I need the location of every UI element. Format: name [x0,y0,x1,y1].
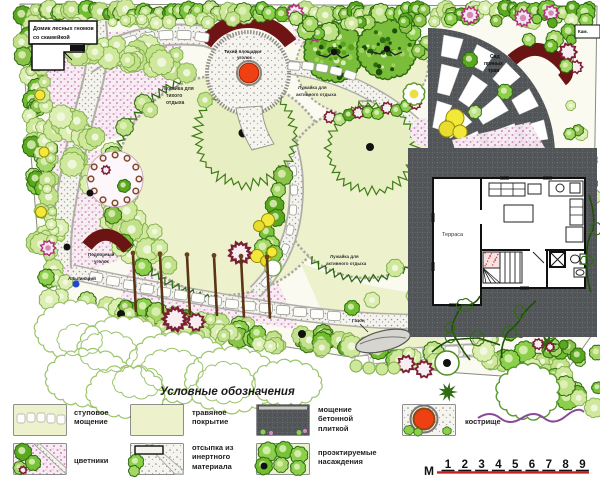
svg-text:кострище: кострище [465,417,501,426]
svg-text:8: 8 [562,459,569,471]
svg-text:Тихий площадки: Тихий площадки [224,48,261,54]
svg-text:М: М [424,464,434,478]
svg-text:Альпинарий: Альпинарий [68,275,96,281]
svg-text:1: 1 [445,459,452,471]
svg-text:Сад: Сад [490,54,500,60]
svg-text:активного отдыха: активного отдыха [326,261,367,266]
svg-text:камня: камня [360,104,370,108]
svg-text:уголок: уголок [237,55,253,60]
svg-text:бетонной: бетонной [318,414,354,423]
svg-text:цветники: цветники [74,456,109,465]
svg-text:мощение: мощение [318,405,352,414]
svg-text:5: 5 [512,459,519,471]
svg-text:травяное: травяное [192,408,227,417]
svg-text:со скамейкой: со скамейкой [33,34,70,41]
svg-text:Терраса: Терраса [442,232,464,238]
svg-text:проэктируемые: проэктируемые [318,448,377,457]
svg-text:Домик лесных гномов: Домик лесных гномов [33,26,94,32]
svg-text:Лужайка для: Лужайка для [330,253,359,259]
svg-text:материала: материала [192,462,233,471]
svg-text:тихого: тихого [166,93,182,99]
svg-text:3: 3 [478,459,484,471]
svg-text:пряных: пряных [484,61,503,67]
svg-text:6: 6 [529,459,535,471]
svg-text:активного отдыха: активного отдыха [296,92,337,97]
svg-text:Лужайка для: Лужайка для [298,84,327,90]
svg-text:трав: трав [488,68,499,74]
svg-text:Условные обозначения: Условные обозначения [160,386,295,398]
svg-text:насаждения: насаждения [318,457,363,466]
svg-text:Лужайка для: Лужайка для [162,85,194,92]
svg-text:9: 9 [579,459,585,471]
svg-text:мощение: мощение [74,417,108,426]
svg-text:отсыпка из: отсыпка из [192,443,234,452]
svg-text:дорожка из: дорожка из [358,99,377,103]
svg-text:7: 7 [546,459,552,471]
svg-text:уголок: уголок [94,259,110,264]
svg-text:плиткой: плиткой [318,424,349,433]
svg-text:инертного: инертного [192,452,231,461]
svg-text:Кам.: Кам. [578,29,588,34]
svg-text:Газон: Газон [352,318,365,323]
svg-text:отдыха: отдыха [166,100,185,106]
svg-text:ступовое: ступовое [74,408,109,417]
svg-text:4: 4 [495,459,502,471]
svg-text:Подпорный: Подпорный [88,251,115,257]
svg-text:2: 2 [462,459,468,471]
svg-text:покрытие: покрытие [192,417,228,426]
